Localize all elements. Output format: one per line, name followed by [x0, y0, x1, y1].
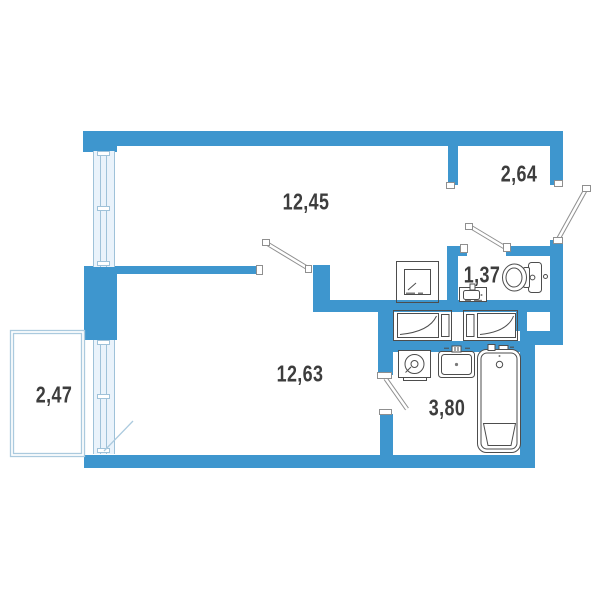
- floor-plan: 12,45 2,64 1,37 12,63 3,80 2,47: [0, 0, 600, 600]
- bathroom-door: [386, 379, 408, 410]
- balcony-door-leaf: [104, 421, 133, 451]
- bathtub-symbol: [478, 345, 521, 453]
- stove-symbol: [397, 262, 439, 303]
- area-label-balcony: 2,47: [36, 382, 72, 409]
- area-label-living-room: 12,45: [283, 189, 330, 216]
- wc-door: [470, 227, 505, 248]
- toilet-symbol: [503, 263, 548, 293]
- bathroom-sink-symbol: [439, 346, 475, 378]
- area-label-wc: 1,37: [464, 262, 500, 289]
- area-label-bathroom: 3,80: [429, 395, 465, 422]
- washing-machine-symbol: [399, 351, 431, 381]
- area-label-bedroom: 12,63: [277, 361, 324, 388]
- entrance-door: [558, 189, 586, 240]
- plan-symbols: [0, 0, 600, 600]
- wardrobe-symbol-right: [464, 311, 518, 341]
- room-door: [267, 244, 308, 269]
- area-label-entrance-hall: 2,64: [501, 161, 537, 188]
- wardrobe-symbol-left: [394, 311, 452, 341]
